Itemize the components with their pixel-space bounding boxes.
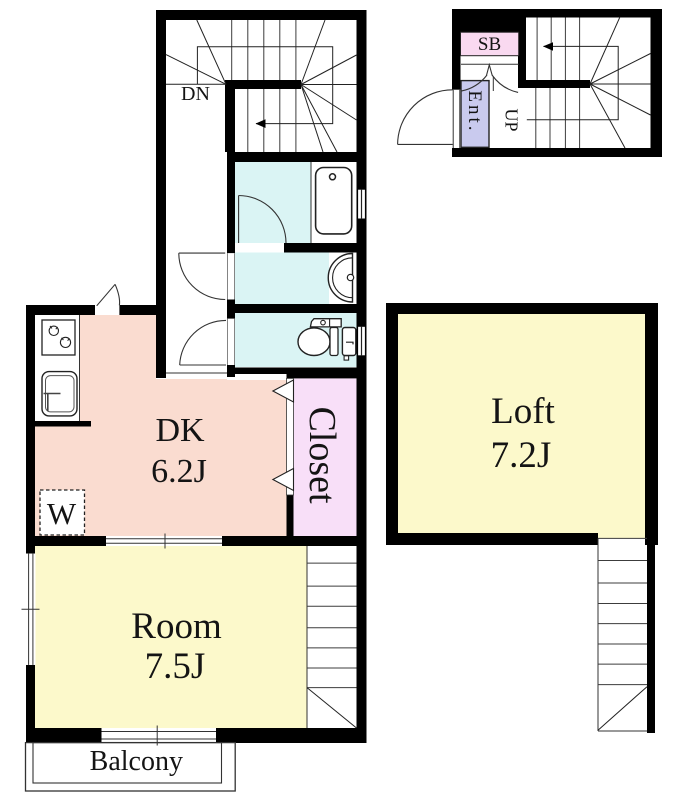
svg-text:DK: DK bbox=[155, 412, 205, 449]
svg-text:DN: DN bbox=[181, 83, 210, 105]
svg-text:6.2J: 6.2J bbox=[151, 453, 207, 490]
svg-text:Closet: Closet bbox=[301, 406, 343, 504]
svg-text:Room: Room bbox=[131, 606, 222, 647]
svg-text:W: W bbox=[47, 496, 77, 531]
svg-text:Loft: Loft bbox=[491, 391, 555, 432]
svg-text:7.5J: 7.5J bbox=[145, 646, 206, 687]
svg-text:Ent.: Ent. bbox=[464, 90, 485, 133]
svg-text:UP: UP bbox=[502, 108, 522, 131]
svg-text:Balcony: Balcony bbox=[90, 746, 183, 777]
svg-text:SB: SB bbox=[478, 34, 501, 55]
svg-text:7.2J: 7.2J bbox=[491, 435, 552, 476]
